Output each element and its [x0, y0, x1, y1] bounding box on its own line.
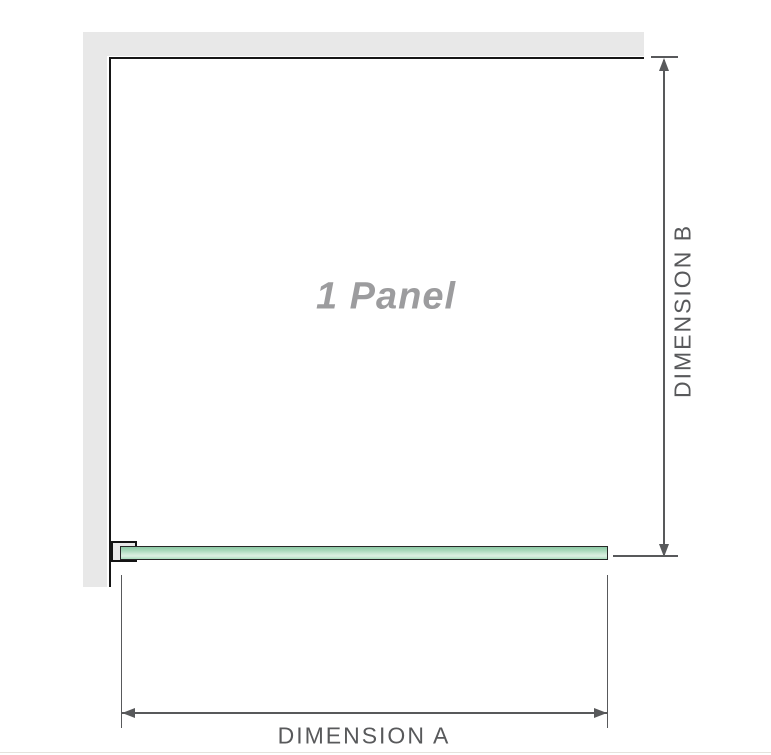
arrow-down-icon	[659, 544, 669, 557]
wall-top-inner-edge	[109, 57, 644, 59]
shower-panel-diagram: 1 Panel DIMENSION B DIMENSION A	[0, 0, 771, 755]
dimension-a-label: DIMENSION A	[278, 723, 451, 750]
arrow-left-icon	[122, 708, 135, 718]
bottom-divider	[0, 752, 771, 754]
panel-count-label: 1 Panel	[316, 276, 456, 319]
wall-left-inner-edge	[109, 57, 111, 587]
wall-left	[83, 32, 107, 587]
dimension-a-left-extension	[121, 575, 123, 728]
dimension-b-label: DIMENSION B	[670, 224, 697, 398]
dimension-a-right-extension	[607, 575, 609, 728]
arrow-right-icon	[594, 708, 607, 718]
dimension-b-line	[663, 60, 665, 555]
arrow-up-icon	[659, 58, 669, 71]
dimension-a-line	[122, 712, 607, 714]
wall-top	[83, 32, 644, 56]
glass-panel-bar	[120, 546, 608, 560]
